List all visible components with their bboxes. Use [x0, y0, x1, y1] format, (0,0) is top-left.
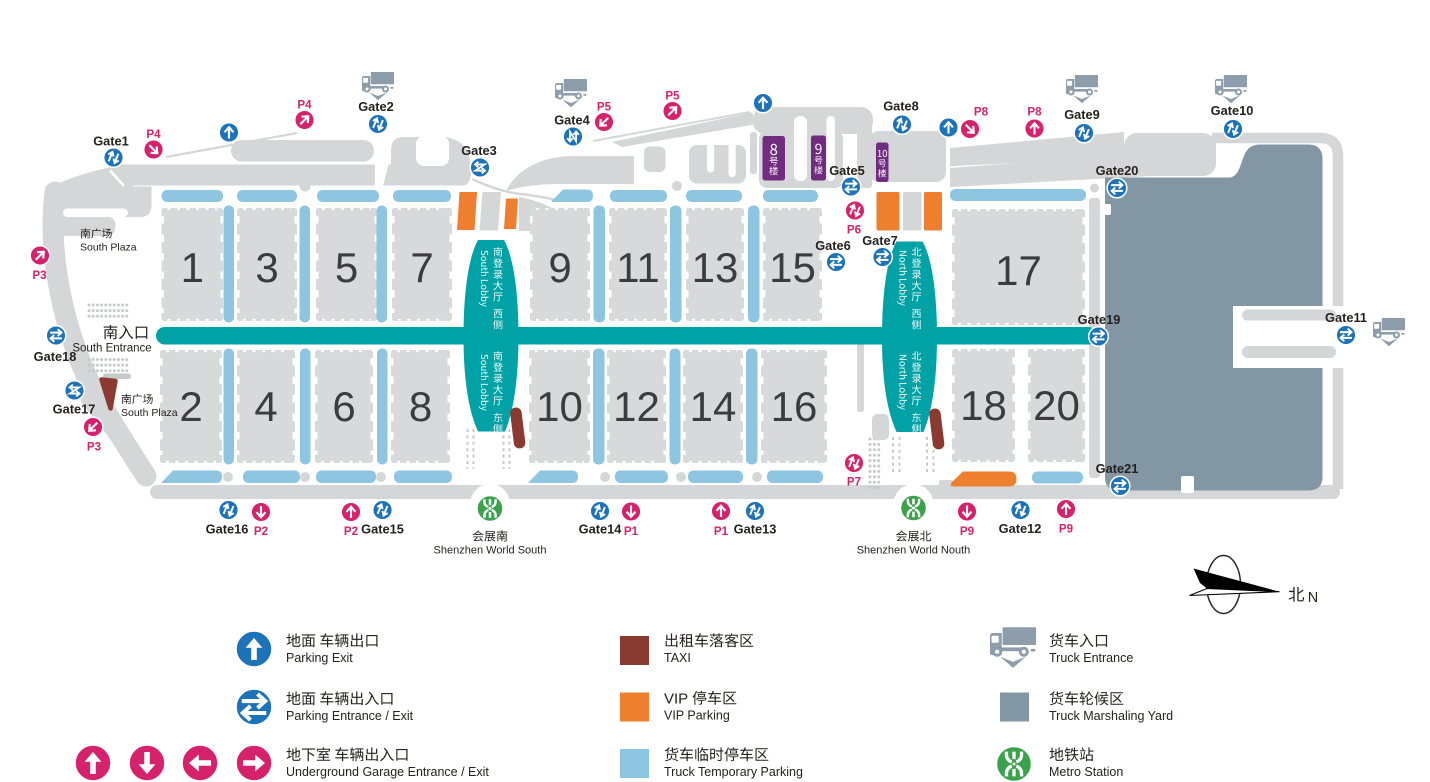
svg-text:South Plaza: South Plaza	[121, 407, 178, 419]
svg-text:N: N	[1308, 590, 1318, 606]
svg-text:P5: P5	[665, 90, 680, 103]
svg-text:Gate16: Gate16	[206, 522, 249, 537]
svg-text:Gate18: Gate18	[34, 349, 77, 364]
svg-text:Gate19: Gate19	[1078, 312, 1121, 327]
svg-text:13: 13	[692, 244, 739, 291]
svg-text:1: 1	[181, 244, 204, 291]
svg-text:Gate6: Gate6	[815, 238, 851, 253]
svg-text:P8: P8	[1027, 106, 1042, 119]
svg-text:11: 11	[616, 244, 660, 291]
svg-text:Metro Station: Metro Station	[1049, 765, 1123, 779]
svg-text:4: 4	[254, 383, 277, 430]
svg-text:Shenzhen World South: Shenzhen World South	[434, 545, 547, 557]
svg-text:Gate12: Gate12	[999, 521, 1042, 536]
svg-text:Gate13: Gate13	[734, 522, 777, 537]
svg-text:P5: P5	[597, 101, 612, 114]
svg-text:6: 6	[332, 383, 355, 430]
svg-text:Gate2: Gate2	[358, 99, 394, 114]
svg-text:P2: P2	[254, 525, 268, 538]
svg-text:17: 17	[995, 247, 1042, 294]
svg-text:20: 20	[1033, 382, 1080, 429]
svg-text:VIP Parking: VIP Parking	[664, 709, 730, 723]
svg-text:South Entrance: South Entrance	[72, 343, 151, 355]
svg-text:TAXI: TAXI	[664, 651, 691, 665]
svg-text:Gate5: Gate5	[829, 163, 865, 178]
svg-text:P1: P1	[624, 525, 639, 538]
svg-text:9: 9	[548, 244, 571, 291]
svg-text:Parking Entrance / Exit: Parking Entrance / Exit	[286, 709, 414, 723]
svg-text:Parking Exit: Parking Exit	[286, 651, 353, 665]
svg-text:5: 5	[335, 244, 358, 291]
svg-text:Gate7: Gate7	[862, 233, 898, 248]
svg-text:P3: P3	[32, 269, 47, 282]
svg-text:Gate15: Gate15	[361, 522, 404, 537]
svg-text:2: 2	[179, 383, 202, 430]
svg-text:P2: P2	[344, 525, 358, 538]
svg-text:P4: P4	[146, 128, 161, 141]
svg-text:Gate9: Gate9	[1064, 107, 1100, 122]
svg-text:Gate17: Gate17	[53, 402, 96, 417]
svg-text:Gate11: Gate11	[1325, 310, 1367, 325]
svg-text:VIP: VIP	[664, 691, 688, 708]
svg-text:10: 10	[536, 383, 583, 430]
svg-text:P9: P9	[1059, 523, 1074, 536]
svg-text:P8: P8	[974, 106, 989, 119]
svg-text:Truck Marshaling Yard: Truck Marshaling Yard	[1049, 709, 1173, 723]
svg-text:15: 15	[769, 244, 816, 291]
svg-text:Gate20: Gate20	[1096, 163, 1139, 178]
svg-text:Truck Entrance: Truck Entrance	[1049, 651, 1133, 665]
svg-text:P4: P4	[297, 99, 312, 112]
svg-text:18: 18	[960, 382, 1007, 429]
svg-text:P1: P1	[714, 525, 729, 538]
svg-text:Gate10: Gate10	[1211, 103, 1254, 118]
svg-text:Gate1: Gate1	[93, 134, 129, 149]
svg-text:3: 3	[255, 244, 278, 291]
svg-text:P3: P3	[87, 441, 102, 454]
svg-text:Shenzhen World Nouth: Shenzhen World Nouth	[857, 545, 971, 557]
svg-text:Gate21: Gate21	[1096, 461, 1139, 476]
svg-text:8: 8	[409, 383, 432, 430]
svg-text:Gate8: Gate8	[883, 99, 919, 114]
svg-text:P9: P9	[960, 525, 975, 538]
svg-text:14: 14	[690, 383, 737, 430]
svg-text:Gate14: Gate14	[579, 522, 623, 537]
svg-text:Gate4: Gate4	[554, 113, 590, 128]
svg-text:South Plaza: South Plaza	[80, 242, 137, 254]
svg-text:P6: P6	[847, 224, 862, 237]
svg-text:12: 12	[613, 383, 660, 430]
svg-text:16: 16	[771, 383, 818, 430]
svg-text:Gate3: Gate3	[461, 143, 497, 158]
svg-text:Truck Temporary Parking: Truck Temporary Parking	[664, 765, 803, 779]
svg-text:7: 7	[410, 244, 433, 291]
svg-text:P7: P7	[847, 476, 861, 489]
svg-text:Underground Garage Entrance /: Underground Garage Entrance / Exit	[286, 765, 489, 779]
